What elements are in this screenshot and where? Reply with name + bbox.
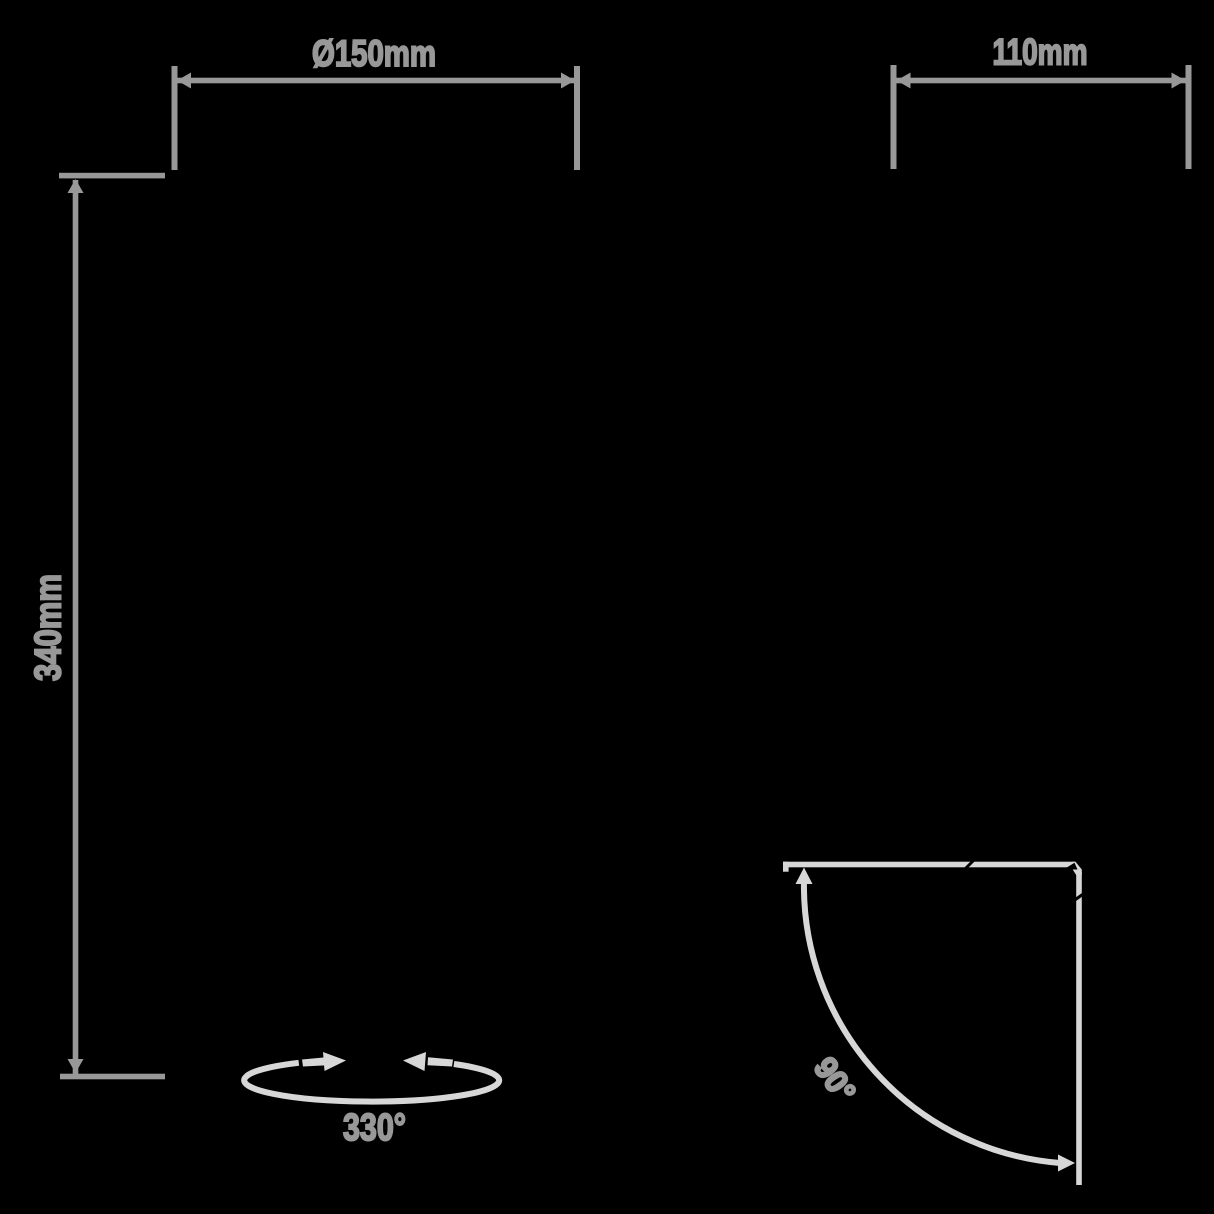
svg-text:110mm: 110mm [993, 32, 1088, 73]
svg-text:340mm: 340mm [27, 574, 68, 681]
svg-text:Ø150mm: Ø150mm [312, 33, 436, 74]
svg-text:330°: 330° [343, 1107, 406, 1149]
